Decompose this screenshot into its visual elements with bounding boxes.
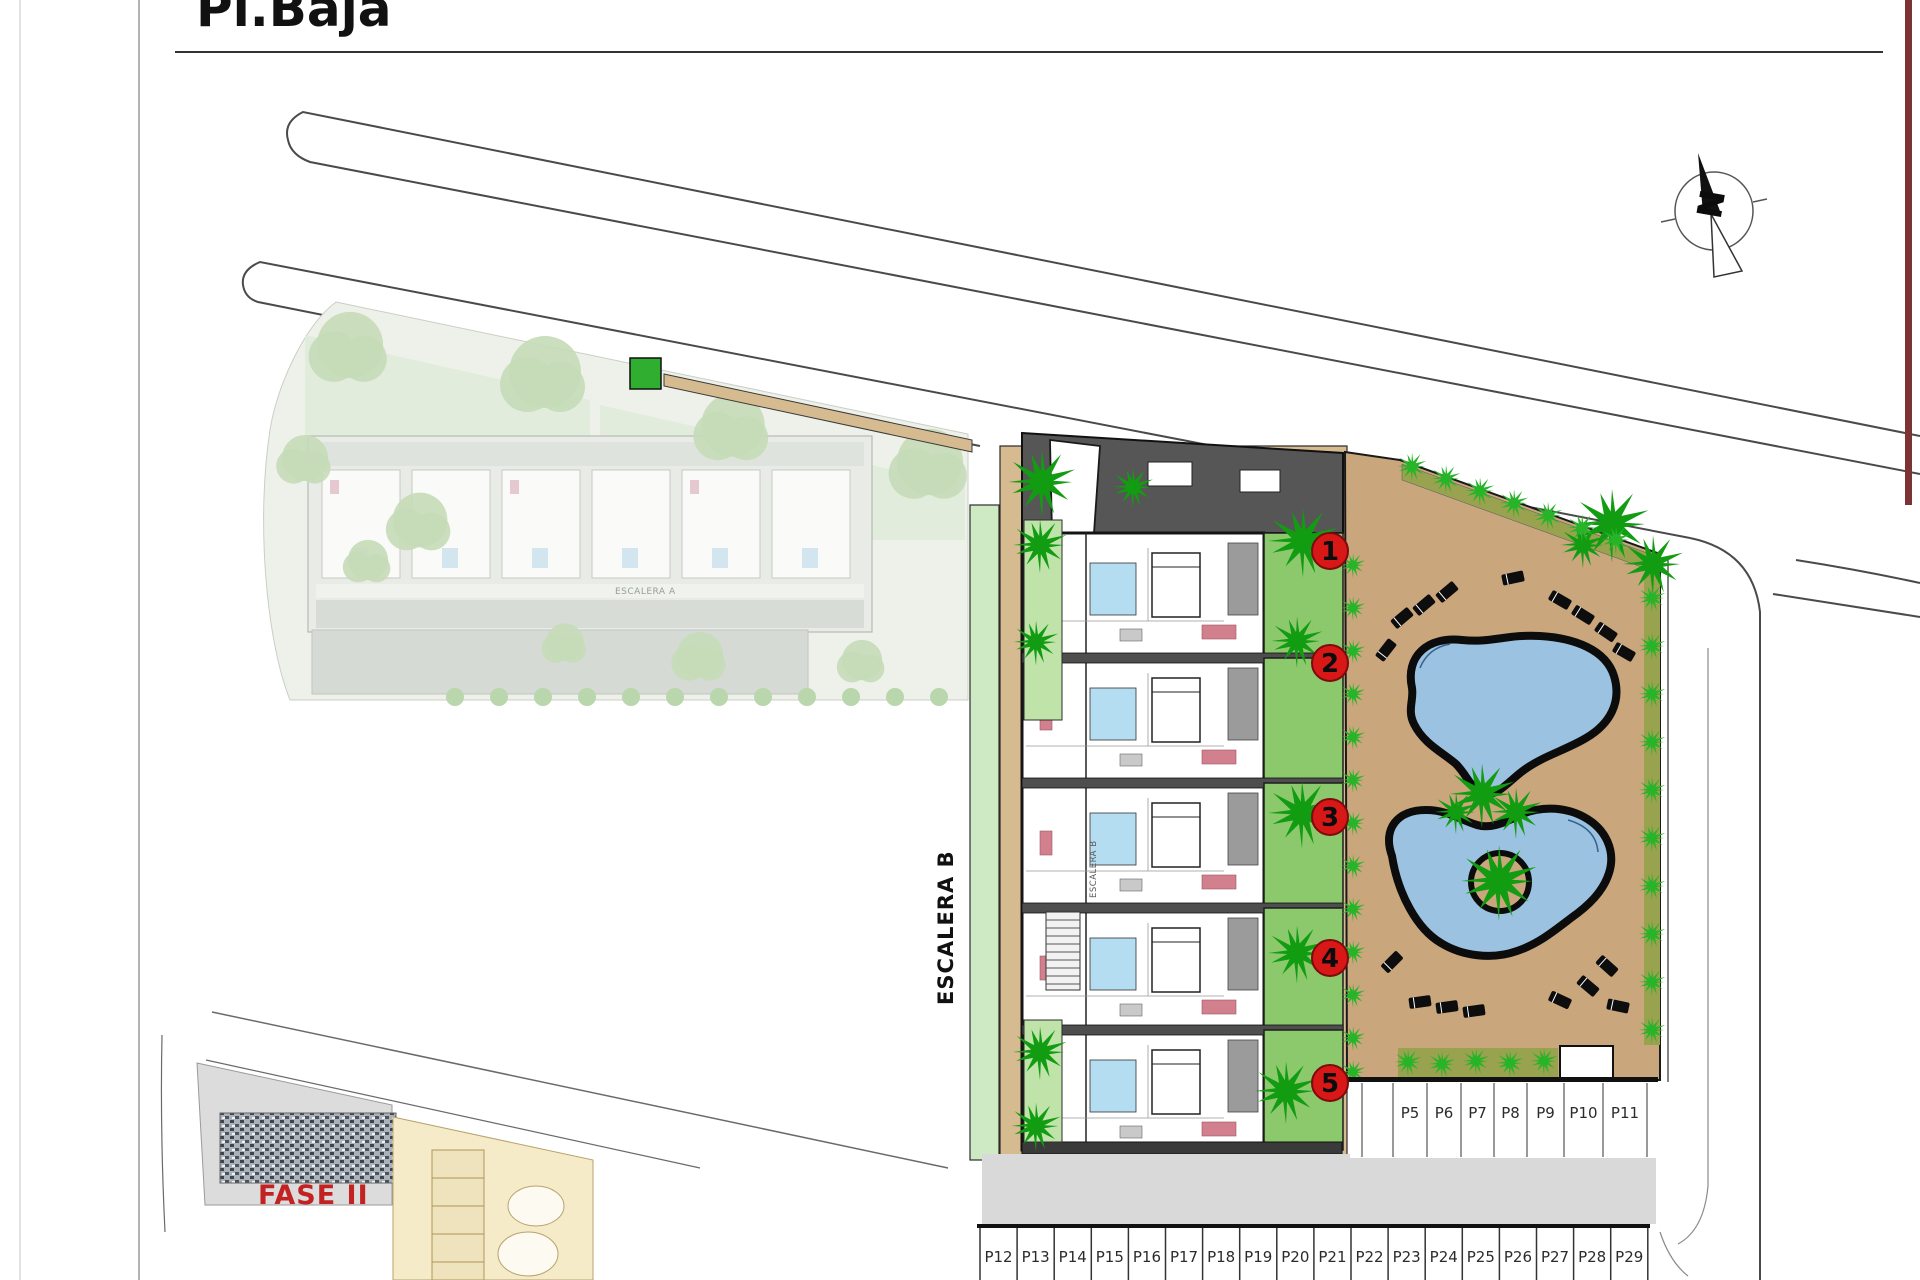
bed — [1152, 678, 1200, 742]
pool-equipment-room — [1560, 1046, 1613, 1080]
faded-hedge-icon — [666, 688, 684, 706]
parking-stall-label: P18 — [1207, 1248, 1235, 1266]
road-east-upper — [1796, 560, 1920, 583]
stairwell — [1046, 912, 1080, 990]
terrace — [1228, 668, 1258, 740]
unit-badge-number: 5 — [1321, 1069, 1339, 1099]
parking-curb — [977, 1224, 1650, 1228]
bathroom — [1090, 1060, 1136, 1112]
parking-curb — [1347, 1077, 1658, 1082]
faded-hedge-icon — [842, 688, 860, 706]
street-green-strip — [970, 505, 999, 1160]
boundary-tree-square — [630, 358, 661, 389]
fase-ii-label: FASE II — [258, 1180, 369, 1211]
parking-stall-label: P29 — [1615, 1248, 1643, 1266]
parking-stall-label: P20 — [1281, 1248, 1309, 1266]
building-entrance-notch — [1050, 440, 1100, 533]
faded-hedge-icon — [446, 688, 464, 706]
faded-hedge-icon — [534, 688, 552, 706]
parking-stall-label: P25 — [1467, 1248, 1495, 1266]
parking-aisle — [982, 1154, 1656, 1224]
faded-bath — [712, 548, 728, 568]
keymap-building-thumb — [220, 1113, 396, 1183]
faded-hedge-icon — [930, 688, 948, 706]
faded-hedge-icon — [578, 688, 596, 706]
unit-badge: 2 — [1312, 645, 1348, 681]
faded-bath — [442, 548, 458, 568]
parking-stall-label: P8 — [1501, 1104, 1520, 1122]
keymap-parcel-current — [393, 1117, 593, 1280]
north-letter: N — [1690, 187, 1734, 222]
faded-building: ESCALERA A — [308, 436, 872, 694]
armchair — [1040, 831, 1052, 855]
escalera-a-label: ESCALERA A — [615, 587, 676, 597]
parking-stall-label: P10 — [1569, 1104, 1597, 1122]
parking-stall-label: P24 — [1430, 1248, 1458, 1266]
parking-row-bottom: P12P13P14P15P16P17P18P19P20P21P22P23P24P… — [977, 1224, 1650, 1280]
faded-sofa — [510, 480, 519, 494]
faded-hedge-icon — [754, 688, 772, 706]
faded-parcel: ESCALERA A — [264, 302, 972, 706]
parking-stall-label: P16 — [1133, 1248, 1161, 1266]
table — [1120, 754, 1142, 766]
parking-stall-label: P17 — [1170, 1248, 1198, 1266]
terrace — [1228, 543, 1258, 615]
escalera-b-core-label: ESCALERA B — [1089, 840, 1099, 898]
bathroom — [1090, 938, 1136, 990]
bathroom — [1090, 563, 1136, 615]
terrace — [1228, 793, 1258, 865]
unit-badge: 3 — [1312, 799, 1348, 835]
table — [1120, 629, 1142, 641]
parking-stall-label: P28 — [1578, 1248, 1606, 1266]
bathroom — [1090, 688, 1136, 740]
unit-badge-number: 1 — [1321, 537, 1339, 567]
parking-stall-label: P9 — [1536, 1104, 1555, 1122]
faded-sofa — [690, 480, 699, 494]
parking-stall-label: P11 — [1611, 1104, 1639, 1122]
parking-stall-label: P27 — [1541, 1248, 1569, 1266]
faded-hedge-icon — [710, 688, 728, 706]
page-title: Pl.Baja — [196, 0, 392, 38]
faded-hedge-icon — [886, 688, 904, 706]
unit-badge: 5 — [1312, 1065, 1348, 1101]
faded-bath — [532, 548, 548, 568]
unit-badge: 4 — [1312, 940, 1348, 976]
site-plan-page: Pl.Baja FASE II — [0, 0, 1920, 1280]
sofa — [1202, 1000, 1236, 1014]
key-map: FASE II — [161, 1012, 948, 1280]
parking-stall-label: P5 — [1401, 1104, 1420, 1122]
parking-stall-label: P23 — [1393, 1248, 1421, 1266]
keymap-road-left — [161, 1035, 165, 1232]
sofa — [1202, 625, 1236, 639]
table — [1120, 879, 1142, 891]
sofa — [1202, 750, 1236, 764]
escalera-b-street-label: ESCALERA B — [934, 850, 958, 1005]
site-plan-canvas: Pl.Baja FASE II — [0, 0, 1920, 1280]
keymap-mini-building — [432, 1150, 484, 1280]
unit-badge-number: 4 — [1321, 944, 1339, 974]
faded-bath — [622, 548, 638, 568]
parking-stall-label: P12 — [984, 1248, 1012, 1266]
terrace — [1228, 1040, 1258, 1112]
parking-stall-label: P14 — [1059, 1248, 1087, 1266]
parking-stall-label: P15 — [1096, 1248, 1124, 1266]
parking-stall-label: P21 — [1318, 1248, 1346, 1266]
sheet-edge-strip — [1905, 0, 1912, 505]
faded-sofa — [330, 480, 339, 494]
unit-badge: 1 — [1312, 533, 1348, 569]
bed — [1152, 928, 1200, 992]
north-arrow: N — [1661, 153, 1767, 277]
terrace — [1228, 918, 1258, 990]
faded-bath — [802, 548, 818, 568]
road-east-lower — [1773, 594, 1920, 617]
bed — [1152, 553, 1200, 617]
parking-stall-label: P13 — [1022, 1248, 1050, 1266]
parking-stall-label: P22 — [1355, 1248, 1383, 1266]
table — [1120, 1126, 1142, 1138]
faded-hedge-icon — [490, 688, 508, 706]
bed — [1152, 1050, 1200, 1114]
parking-stall-label: P7 — [1468, 1104, 1487, 1122]
building-south-wall — [1022, 1142, 1342, 1154]
parking-stall-label: P6 — [1435, 1104, 1454, 1122]
parking-stall-label: P26 — [1504, 1248, 1532, 1266]
faded-hedge-icon — [798, 688, 816, 706]
unit-badge-number: 3 — [1321, 803, 1339, 833]
bed — [1152, 803, 1200, 867]
unit-badge-number: 2 — [1321, 649, 1339, 679]
parking-row-right: P5P6P7P8P9P10P11 — [1347, 1077, 1658, 1158]
road-east-corner — [1690, 538, 1760, 1280]
compass-tail-icon — [1711, 214, 1742, 277]
sofa — [1202, 1122, 1236, 1136]
table — [1120, 1004, 1142, 1016]
sofa — [1202, 875, 1236, 889]
faded-hedge-icon — [622, 688, 640, 706]
parking-stall-label: P19 — [1244, 1248, 1272, 1266]
road-side-line — [1660, 648, 1708, 1276]
